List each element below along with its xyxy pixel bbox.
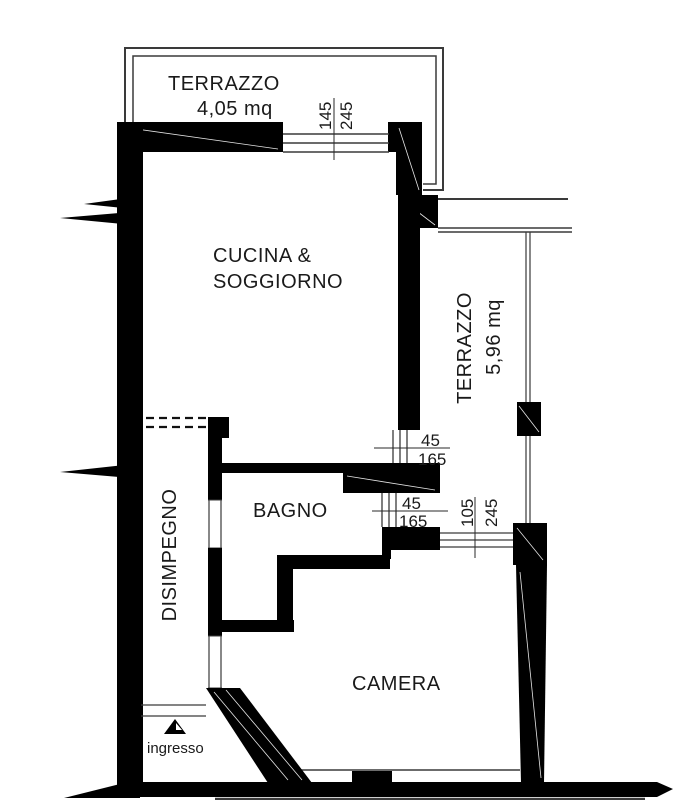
room-label-cucina-line1: CUCINA & [213,245,312,267]
camera-window-dim-b: 245 [482,499,501,527]
left-wall [60,122,143,798]
bottom-pillar [352,771,392,783]
entrance-opening [141,705,206,716]
entrance-arrow-icon [164,719,186,734]
bagno-window-upper-dim-b: 165 [418,450,446,469]
wall-flag-icon [60,211,143,226]
bagno-window-lower-dim-b: 165 [399,512,427,531]
room-label-terrazzo-top: TERRAZZO [168,73,280,95]
room-label-disimpegno: DISIMPEGNO [159,489,181,622]
camera-window-dim-a: 105 [458,499,477,527]
floor-plan-page: 145 245 [0,0,686,800]
room-label-camera: CAMERA [352,673,441,695]
room-label-bagno: BAGNO [253,500,328,522]
wall-flag-icon [60,463,143,479]
open-passage-dashed [146,418,206,427]
corridor-right-wall [208,417,229,688]
kitchen-right-wall [398,195,420,430]
floor-plan-drawing: 145 245 [0,0,686,800]
bagno-window-lower-dim-a: 45 [402,494,421,513]
terrace-window-dim-b: 245 [337,102,356,130]
door-opening-camera [208,636,222,688]
room-label-cucina-line2: SOGGIORNO [213,271,343,293]
room-label-ingresso: ingresso [147,740,204,757]
top-wall [117,122,438,228]
bottom-wall [140,782,673,797]
diagonal-wall [206,688,312,783]
wall-flag-icon [84,196,143,210]
room-area-terrazzo-right: 5,96 mq [483,299,505,375]
room-area-terrazzo-top: 4,05 mq [197,98,273,120]
terrace-window-dim-a: 145 [316,102,335,130]
bagno-window-upper-dim-a: 45 [421,431,440,450]
terrace-top-border [125,48,443,190]
bagno-walls [208,463,440,632]
room-label-terrazzo-right: TERRAZZO [454,292,476,404]
door-opening-bagno [208,500,222,548]
camera-right-wall [516,565,547,783]
terrace-window [283,98,389,160]
